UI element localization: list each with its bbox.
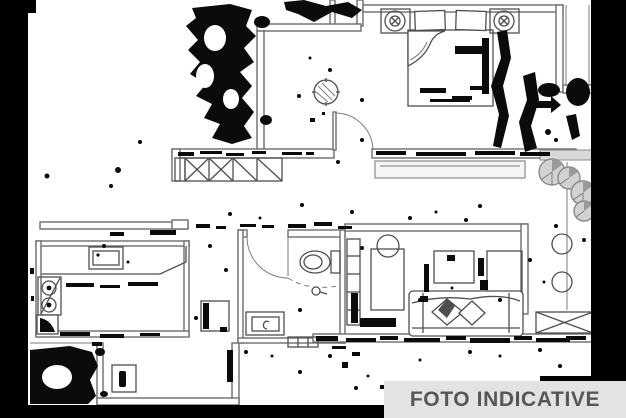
lower-section-walls <box>30 162 595 405</box>
crossed-unit-icon <box>536 312 593 333</box>
crossed-wardrobe-icon <box>175 158 282 181</box>
scan-black-border-left <box>0 0 28 418</box>
scan-black-borders <box>0 0 626 418</box>
appliance-icon <box>201 301 229 332</box>
kitchen-sink-icon <box>89 247 123 269</box>
scanned-floorplan-page: FOTO INDICATIVE <box>0 0 626 418</box>
desk-icon <box>371 249 404 310</box>
terrace-panel-icon <box>112 365 136 392</box>
banner-label: FOTO INDICATIVE <box>410 388 600 412</box>
bedside-lamp-right-icon <box>494 11 514 31</box>
floor-plan-drawing <box>0 0 626 418</box>
kitchen-counter-icon <box>41 246 186 274</box>
corner-cabinet-icon <box>37 315 58 334</box>
shower-icon <box>288 278 338 295</box>
photo-banner: FOTO INDICATIVE <box>384 381 626 418</box>
bedside-lamp-left-icon <box>385 11 405 31</box>
balcony-window-icon <box>375 161 525 178</box>
toilet-icon <box>300 251 340 273</box>
hatched-plant-icon <box>312 78 340 106</box>
bathroom-door-icon <box>247 237 288 278</box>
balcony-stools-icon <box>552 234 572 292</box>
scan-black-border-right <box>591 0 626 381</box>
washbasin-icon <box>246 312 284 335</box>
bedroom-door-icon <box>333 112 373 150</box>
scan-black-strip-bottom <box>0 405 384 418</box>
desk-chair-icon <box>377 235 399 257</box>
